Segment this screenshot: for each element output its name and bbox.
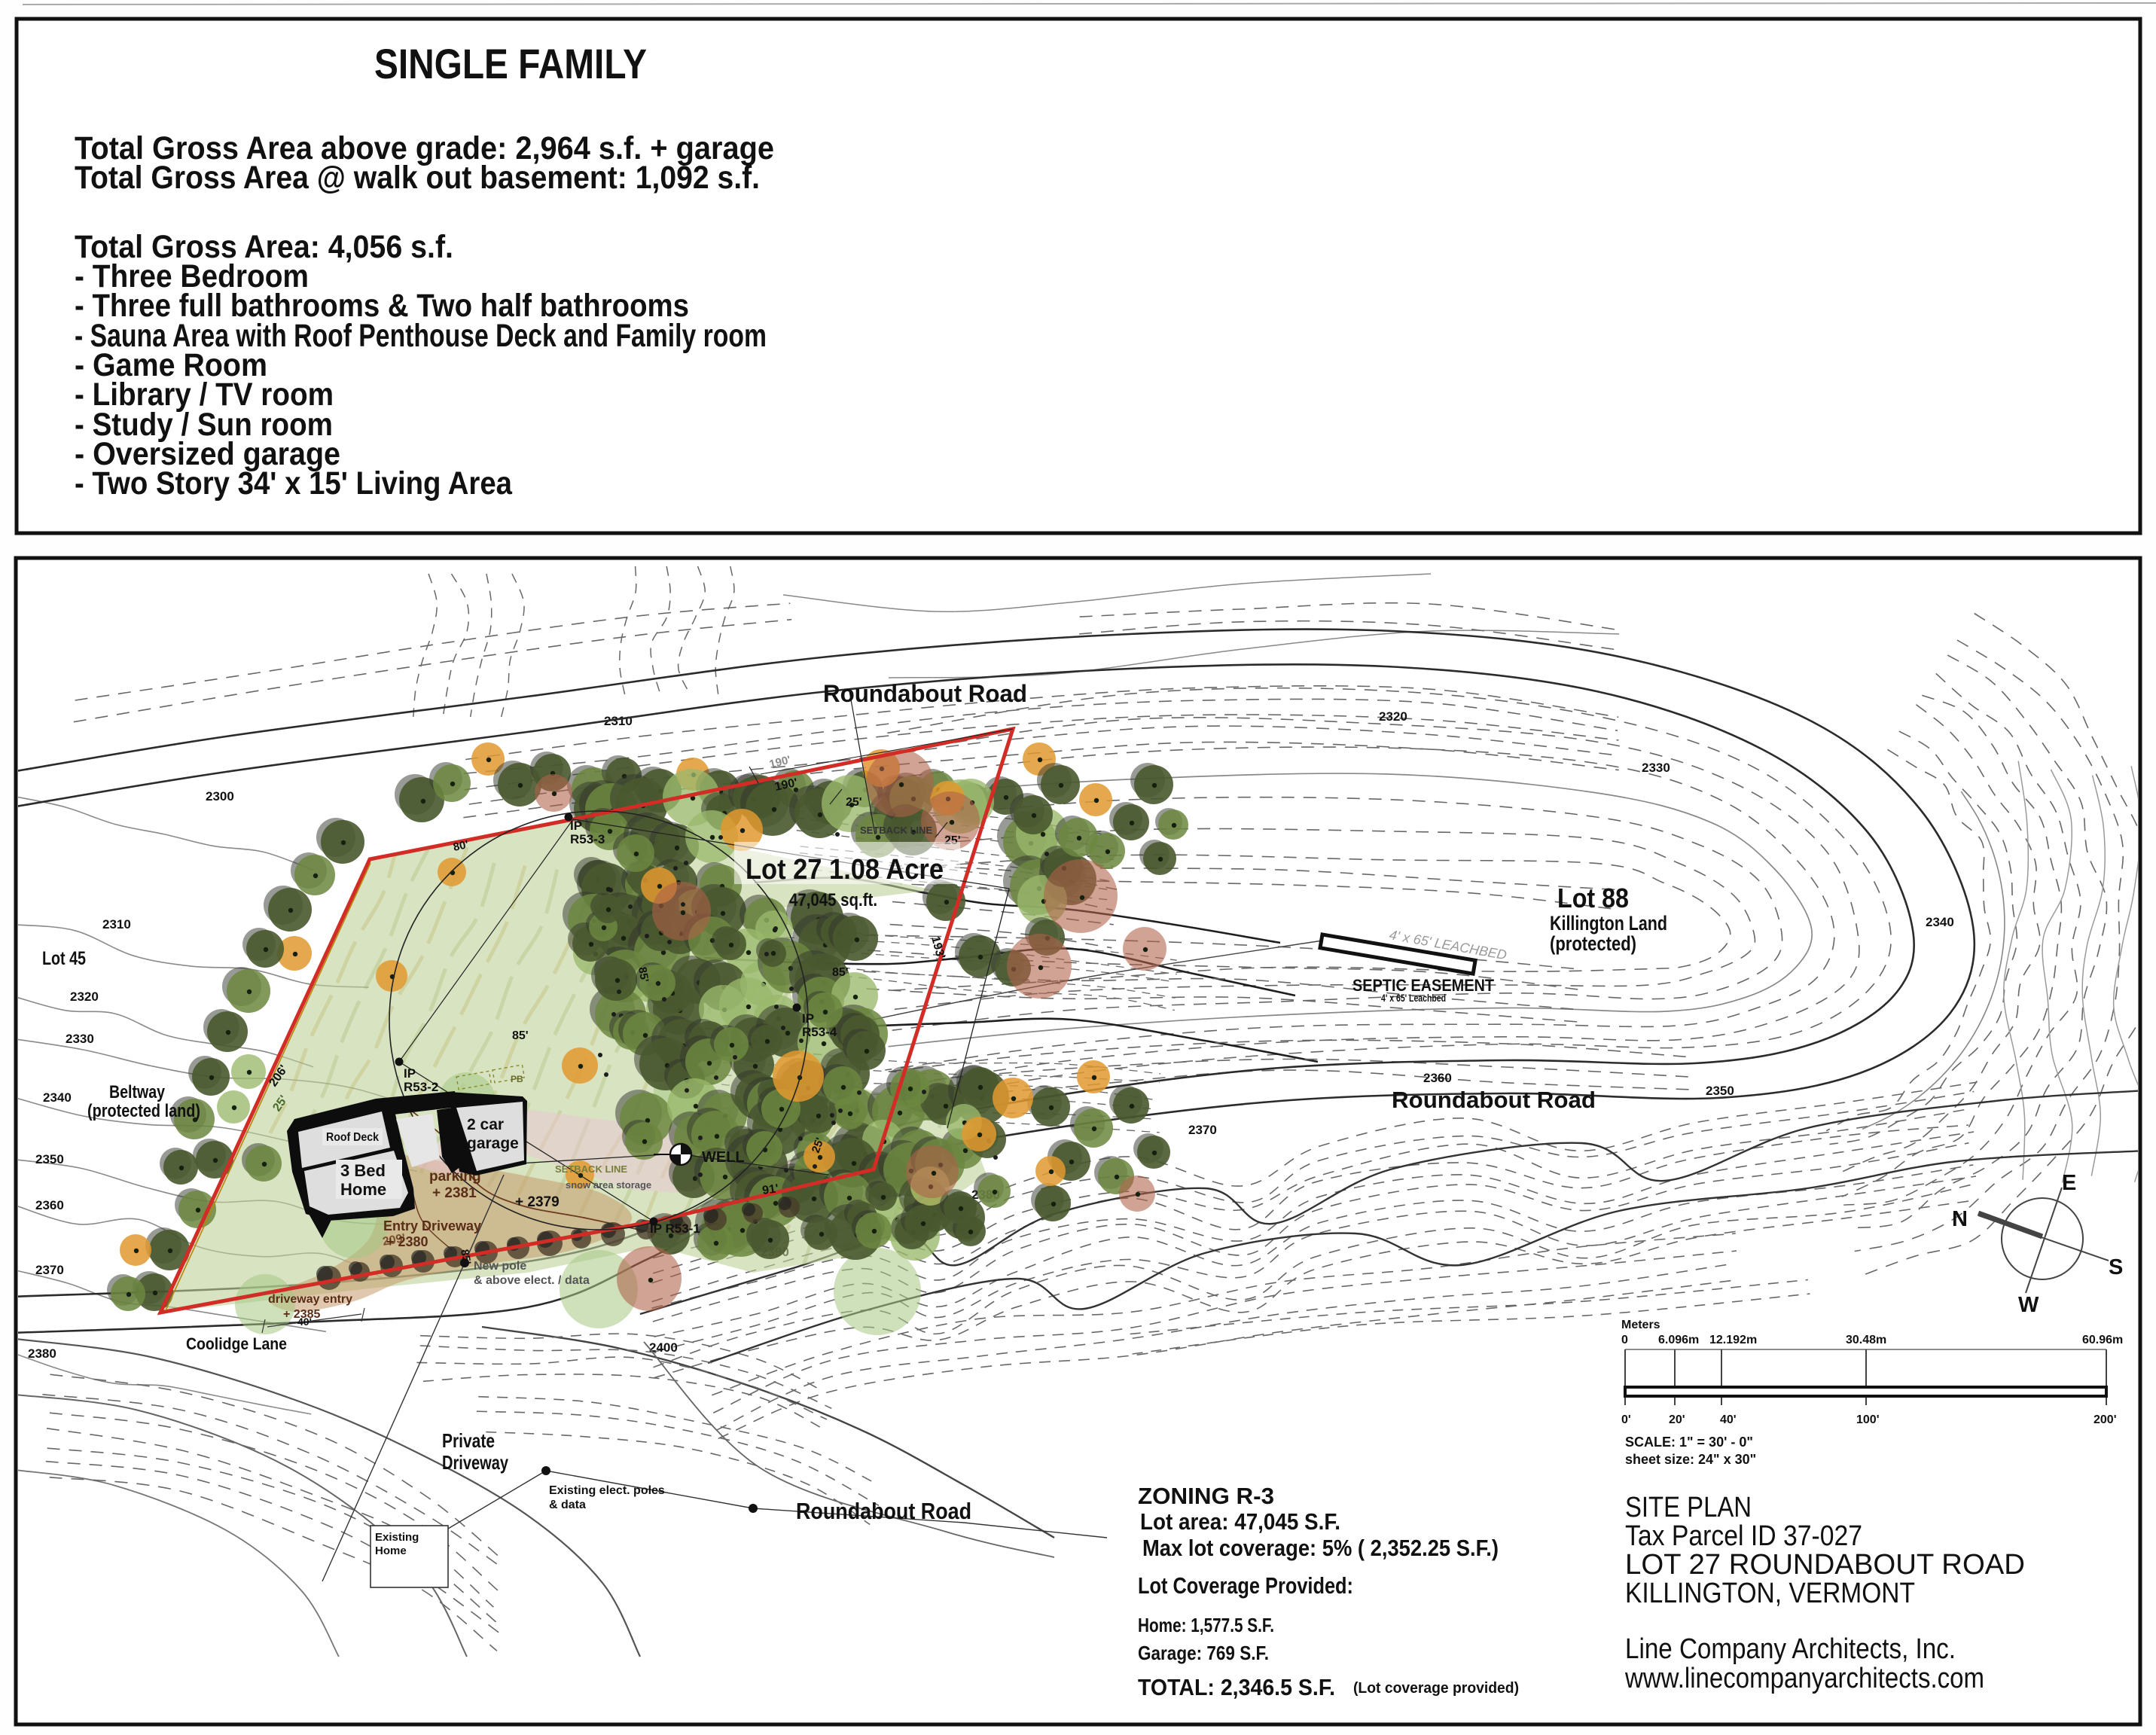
svg-text:IP: IP (404, 1066, 416, 1081)
svg-text:30.48m: 30.48m (1846, 1334, 1886, 1346)
svg-text:2310: 2310 (102, 917, 131, 932)
svg-text:3 Bed: 3 Bed (340, 1161, 386, 1180)
svg-text:E: E (2062, 1171, 2076, 1195)
svg-text:Max lot coverage: 5% ( 2,352: Max lot coverage: 5% ( 2,352.25 S.F.) (1142, 1535, 1499, 1561)
svg-text:Roof Deck: Roof Deck (326, 1131, 379, 1144)
svg-text:SCALE: 1" = 30' - 0": SCALE: 1" = 30' - 0" (1625, 1435, 1753, 1450)
svg-text:Tax Parcel ID 37-027: Tax Parcel ID 37-027 (1625, 1520, 1862, 1552)
svg-text:2360: 2360 (1423, 1071, 1452, 1085)
svg-text:Total Gross Area @ walk out ba: Total Gross Area @ walk out basement: 1,… (75, 160, 760, 196)
svg-text:+ 2380: + 2380 (386, 1234, 428, 1249)
svg-text:85': 85' (832, 966, 849, 979)
svg-text:2330: 2330 (66, 1032, 94, 1046)
svg-text:2330: 2330 (1642, 761, 1670, 775)
svg-text:IP: IP (570, 819, 582, 833)
svg-text:www.linecompanyarchitects.com: www.linecompanyarchitects.com (1624, 1663, 1984, 1694)
svg-text:2350: 2350 (1706, 1084, 1734, 1098)
svg-text:2300: 2300 (206, 789, 234, 803)
svg-text:47,045 sq.ft.: 47,045 sq.ft. (789, 890, 877, 910)
svg-text:& above elect. / data: & above elect. / data (474, 1274, 590, 1287)
svg-text:Home: Home (340, 1180, 386, 1199)
svg-text:60.96m: 60.96m (2082, 1334, 2123, 1346)
svg-text:driveway entry: driveway entry (268, 1293, 352, 1306)
svg-text:KILLINGTON, VERMONT: KILLINGTON, VERMONT (1625, 1578, 1915, 1609)
svg-text:Entry Driveway: Entry Driveway (383, 1218, 481, 1233)
svg-text:R53-4: R53-4 (802, 1025, 837, 1039)
svg-text:ZONING R-3: ZONING R-3 (1138, 1483, 1274, 1509)
svg-text:S: S (2109, 1255, 2123, 1279)
svg-text:SINGLE FAMILY: SINGLE FAMILY (374, 40, 647, 87)
svg-text:25': 25' (846, 796, 862, 809)
svg-text:sheet size: 24" x 30": sheet size: 24" x 30" (1625, 1452, 1756, 1467)
svg-text:85': 85' (636, 966, 651, 983)
svg-text:W: W (2018, 1293, 2039, 1317)
svg-text:Existing elect. poles: Existing elect. poles (549, 1484, 665, 1497)
svg-text:Lot Coverage Provided:: Lot Coverage Provided: (1138, 1572, 1353, 1599)
svg-text:Driveway: Driveway (442, 1451, 508, 1474)
svg-text:100': 100' (1856, 1413, 1880, 1426)
svg-text:20': 20' (1669, 1413, 1685, 1426)
svg-text:Roundabout Road: Roundabout Road (796, 1498, 971, 1524)
svg-text:SETBACK LINE: SETBACK LINE (860, 825, 932, 836)
svg-text:(protected land): (protected land) (87, 1101, 200, 1121)
svg-text:IP: IP (802, 1011, 814, 1026)
svg-text:snow area storage: snow area storage (566, 1179, 651, 1191)
svg-text:(Lot coverage provided): (Lot coverage provided) (1353, 1680, 1519, 1697)
svg-text:(protected): (protected) (1550, 932, 1636, 955)
svg-text:2370: 2370 (35, 1263, 64, 1277)
svg-text:Roundabout Road: Roundabout Road (823, 680, 1027, 707)
svg-text:SITE PLAN: SITE PLAN (1625, 1492, 1752, 1523)
svg-text:2320: 2320 (70, 989, 99, 1004)
svg-text:Home: Home (375, 1544, 407, 1557)
svg-text:Killington Land: Killington Land (1550, 912, 1667, 935)
svg-text:2360: 2360 (35, 1198, 64, 1212)
svg-text:New pole: New pole (474, 1260, 526, 1273)
svg-text:2 car: 2 car (467, 1116, 504, 1133)
svg-text:12.192m: 12.192m (1709, 1334, 1757, 1346)
svg-text:85': 85' (512, 1029, 529, 1042)
svg-text:Line Company Architects, Inc.: Line Company Architects, Inc. (1625, 1633, 1956, 1665)
svg-text:Garage: 769 S.F.: Garage: 769 S.F. (1138, 1642, 1269, 1664)
svg-text:200': 200' (2093, 1413, 2117, 1426)
svg-text:Lot 45: Lot 45 (42, 948, 86, 969)
svg-text:2340: 2340 (1926, 915, 1954, 929)
svg-text:2320: 2320 (1379, 709, 1407, 724)
svg-text:Coolidge Lane: Coolidge Lane (186, 1334, 287, 1353)
svg-text:Existing: Existing (375, 1531, 419, 1544)
svg-text:SETBACK LINE: SETBACK LINE (555, 1163, 627, 1175)
svg-text:PB: PB (511, 1074, 523, 1084)
svg-text:40': 40' (297, 1316, 312, 1328)
svg-text:6.096m: 6.096m (1658, 1334, 1699, 1346)
svg-text:+ 2381: + 2381 (432, 1185, 477, 1201)
svg-text:garage: garage (467, 1135, 519, 1152)
svg-text:Meters: Meters (1621, 1319, 1660, 1331)
svg-text:Lot 27 1.08 Acre: Lot 27 1.08 Acre (746, 854, 944, 886)
svg-text:Home: 1,577.5 S.F.: Home: 1,577.5 S.F. (1138, 1614, 1274, 1636)
svg-text:IP R53-1: IP R53-1 (650, 1221, 700, 1236)
svg-text:0: 0 (1621, 1334, 1628, 1346)
svg-text:0': 0' (1621, 1413, 1631, 1426)
svg-text:Roundabout Road: Roundabout Road (1392, 1087, 1596, 1113)
svg-text:4' x 65' Leachbed: 4' x 65' Leachbed (1381, 992, 1446, 1004)
svg-text:91': 91' (761, 1182, 779, 1197)
svg-text:R53-2: R53-2 (404, 1080, 438, 1094)
svg-text:LOT 27 ROUNDABOUT ROAD: LOT 27 ROUNDABOUT ROAD (1625, 1549, 2025, 1581)
svg-text:+ 2379: + 2379 (515, 1194, 560, 1210)
svg-text:& data: & data (549, 1499, 586, 1511)
svg-text:Beltway: Beltway (109, 1082, 166, 1102)
svg-text:2350: 2350 (35, 1152, 64, 1166)
svg-text:2340: 2340 (43, 1090, 72, 1105)
svg-text:2370: 2370 (1188, 1123, 1217, 1137)
svg-text:Private: Private (442, 1429, 495, 1452)
svg-text:- Two Story 34' x 15' Living A: - Two Story 34' x 15' Living Area (75, 465, 513, 502)
svg-text:N: N (1952, 1207, 1968, 1231)
svg-text:WELL: WELL (702, 1149, 745, 1166)
svg-text:Lot area: 47,045 S.F.: Lot area: 47,045 S.F. (1140, 1508, 1340, 1535)
svg-text:2380: 2380 (28, 1346, 56, 1361)
svg-text:R53-3: R53-3 (570, 832, 605, 846)
svg-text:TOTAL: 2,346.5 S.F.: TOTAL: 2,346.5 S.F. (1138, 1674, 1335, 1700)
svg-text:40': 40' (1720, 1413, 1737, 1426)
svg-text:Lot 88: Lot 88 (1557, 883, 1629, 913)
